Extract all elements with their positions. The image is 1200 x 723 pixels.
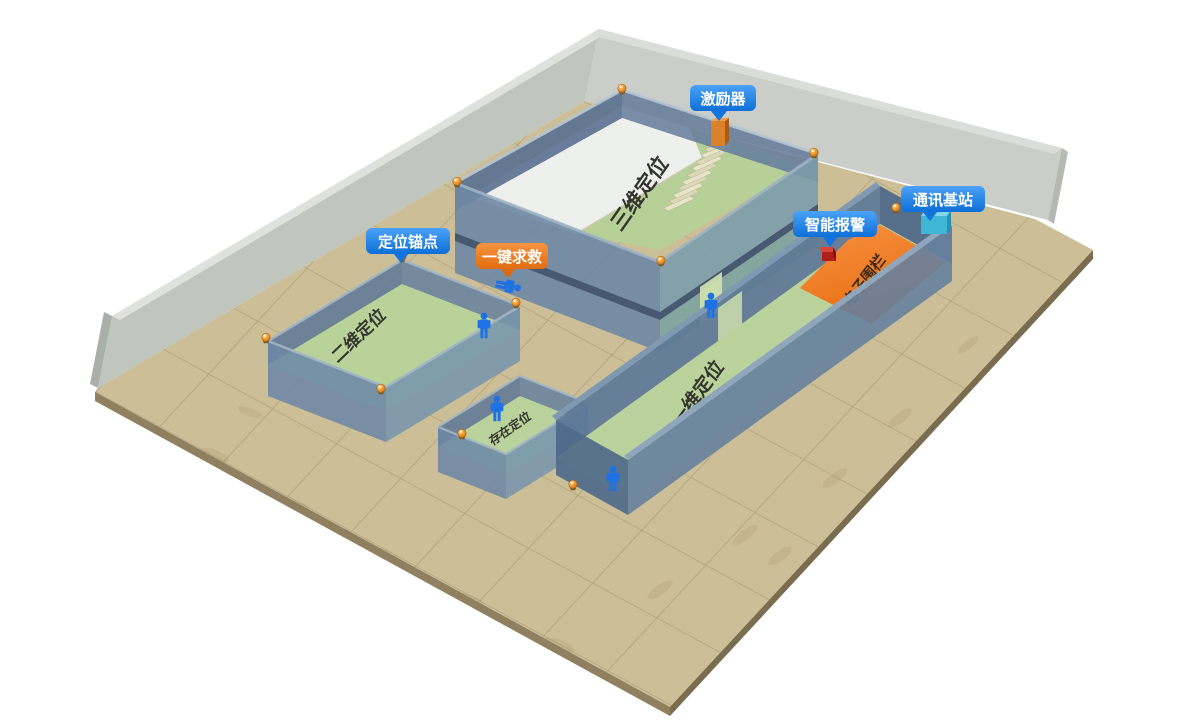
- exciter-device-icon: [711, 118, 729, 146]
- badge-smart-alarm-label: 智能报警: [805, 216, 865, 234]
- badge-sos-label: 一键求救: [482, 248, 542, 266]
- badge-anchor-label: 定位锚点: [378, 233, 438, 251]
- badge-exciter-label: 激励器: [700, 90, 746, 108]
- scene-indoor-positioning: 三维定位 二维定位 存在定位: [0, 0, 1200, 723]
- badge-base-station-label: 通讯基站: [913, 191, 973, 209]
